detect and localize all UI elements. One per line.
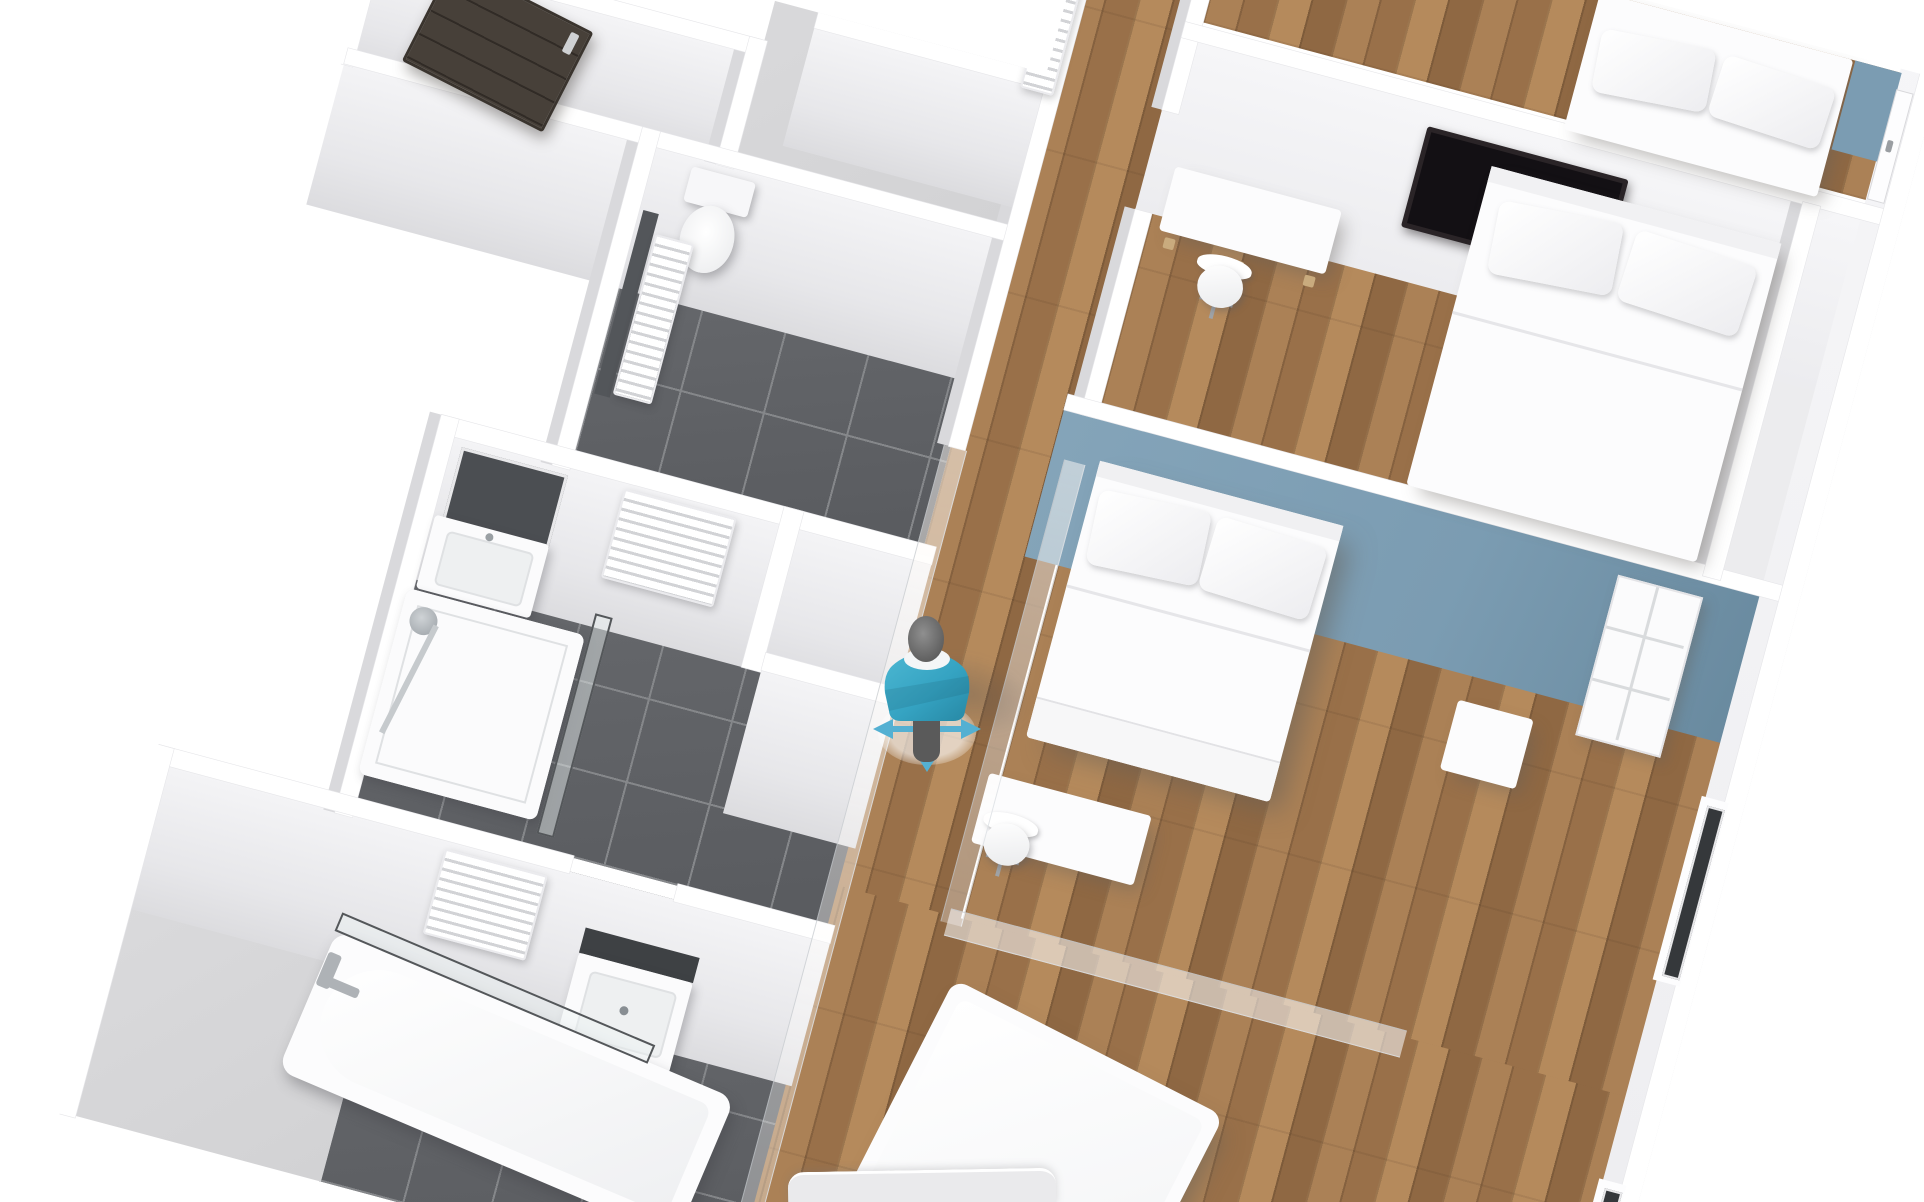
floorplan-3d-viewport[interactable] <box>0 0 1924 1202</box>
dresser-handle <box>562 32 580 56</box>
pillow <box>1707 54 1837 151</box>
avatar-head <box>908 616 944 662</box>
pillow <box>1487 200 1625 297</box>
pillow <box>1085 489 1212 587</box>
shelf-line <box>1615 587 1659 740</box>
door-handle <box>1885 140 1894 153</box>
bottom-panel-edge[interactable] <box>788 1168 1057 1202</box>
basin-bowl <box>433 530 534 607</box>
pillow <box>1591 28 1717 113</box>
avatar-widget[interactable] <box>847 592 1017 802</box>
